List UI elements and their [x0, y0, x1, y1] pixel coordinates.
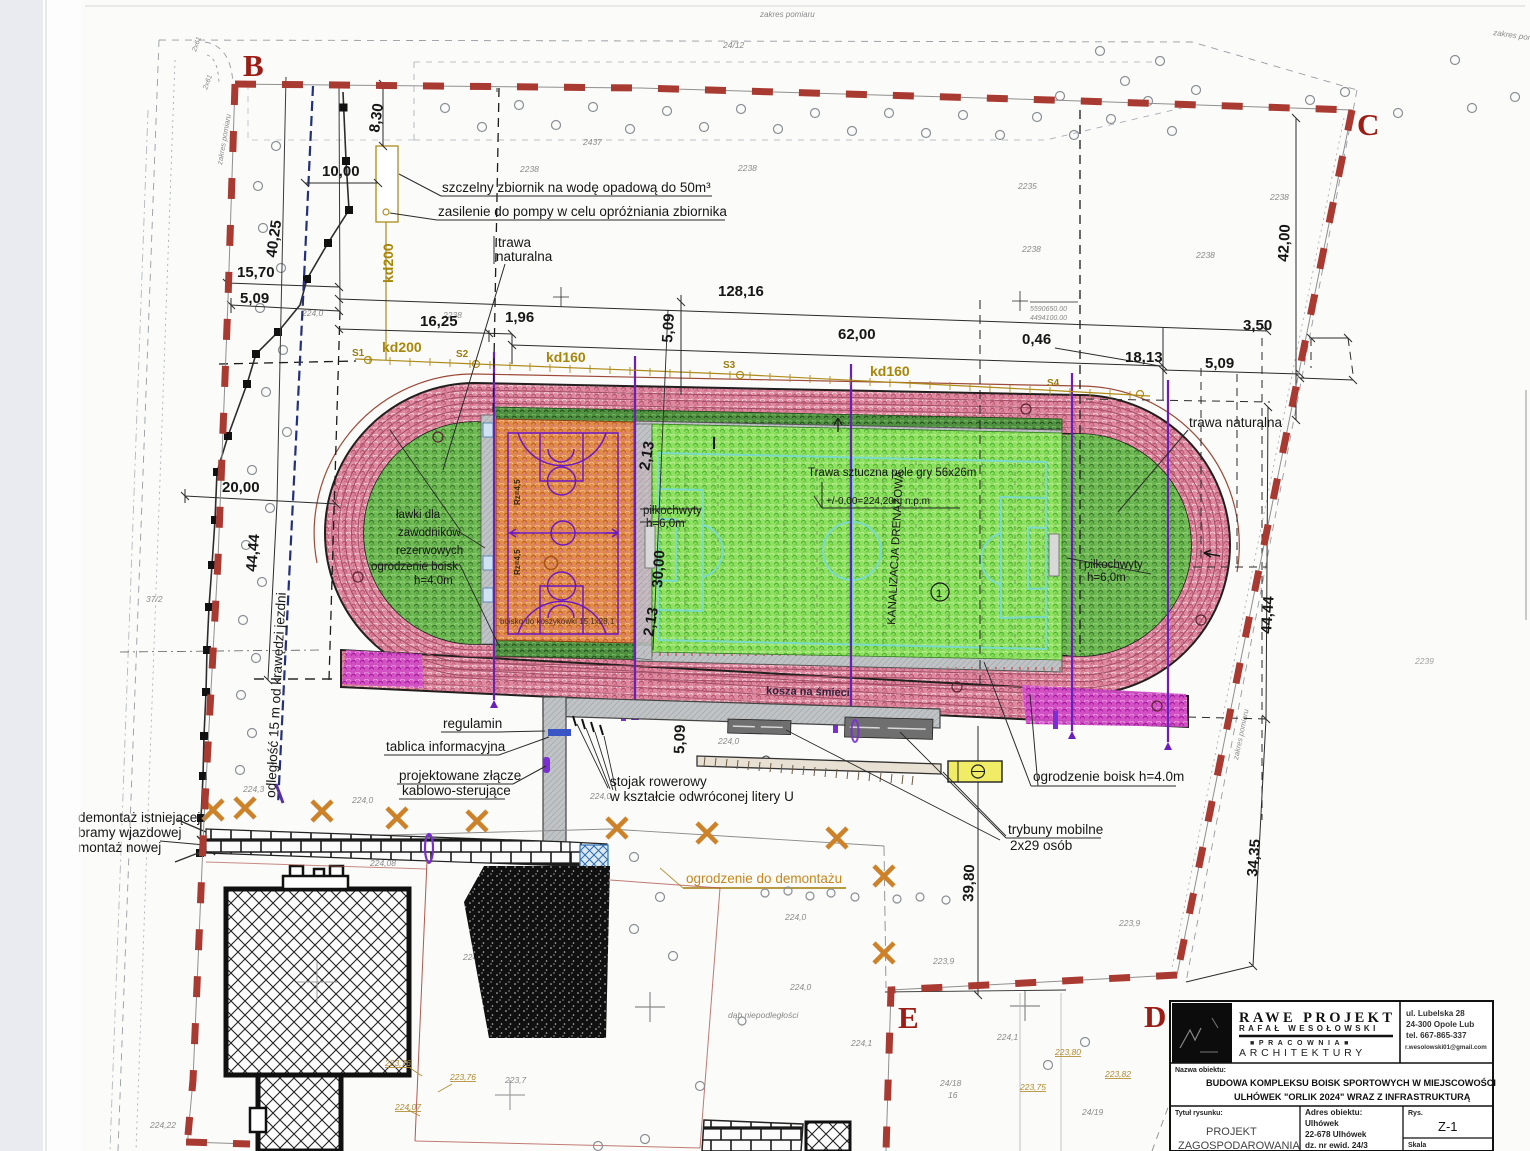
- svg-text:kablowo-sterujące: kablowo-sterujące: [402, 783, 511, 798]
- svg-text:42,00: 42,00: [1275, 224, 1294, 262]
- svg-text:5,09: 5,09: [1205, 355, 1234, 372]
- svg-text:Adres obiektu:: Adres obiektu:: [1305, 1108, 1362, 1117]
- svg-text:223,80: 223,80: [1054, 1047, 1081, 1057]
- svg-text:+/-0,00=224,20m n.p.m: +/-0,00=224,20m n.p.m: [826, 496, 930, 507]
- svg-text:kd160: kd160: [870, 363, 910, 379]
- svg-text:ul. Lubelska 28: ul. Lubelska 28: [1406, 1009, 1465, 1018]
- svg-text:S1: S1: [352, 348, 365, 359]
- svg-text:piłkochwyty: piłkochwyty: [643, 505, 702, 517]
- svg-text:Nazwa obiektu:: Nazwa obiektu:: [1175, 1067, 1226, 1074]
- svg-text:2238: 2238: [1195, 250, 1215, 260]
- svg-text:2437: 2437: [582, 137, 602, 147]
- svg-text:PROJEKT: PROJEKT: [1206, 1126, 1257, 1138]
- svg-text:39,80: 39,80: [960, 864, 978, 902]
- svg-text:zasilenie do pompy w celu opró: zasilenie do pompy w celu opróżniania zb…: [438, 204, 727, 219]
- svg-text:h=6,0m: h=6,0m: [1087, 572, 1126, 584]
- svg-text:62,00: 62,00: [838, 326, 876, 343]
- svg-text:boisko do koszykówki 15,1x28,1: boisko do koszykówki 15,1x28,1: [500, 617, 615, 626]
- svg-text:tablica informacyjna: tablica informacyjna: [386, 739, 506, 754]
- svg-text:22-678 Ulhówek: 22-678 Ulhówek: [1305, 1130, 1367, 1139]
- svg-text:2235: 2235: [1017, 181, 1037, 191]
- svg-text:ogrodzenie boisk h=4.0m: ogrodzenie boisk h=4.0m: [1033, 769, 1184, 784]
- svg-text:rezerwowych: rezerwowych: [396, 545, 463, 557]
- svg-text:224,07: 224,07: [394, 1102, 421, 1112]
- svg-text:ławki dla: ławki dla: [396, 509, 441, 521]
- svg-text:223,76: 223,76: [384, 1058, 411, 1068]
- svg-text:w kształcie odwróconej litery: w kształcie odwróconej litery U: [609, 789, 794, 804]
- svg-text:223,82: 223,82: [1104, 1069, 1131, 1079]
- svg-text:24/18: 24/18: [939, 1078, 962, 1088]
- svg-text:223,76: 223,76: [449, 1072, 476, 1082]
- svg-text:Rys.: Rys.: [1408, 1110, 1423, 1117]
- svg-text:kosza na śmieci: kosza na śmieci: [766, 685, 850, 699]
- svg-text:trawa naturalna: trawa naturalna: [1189, 415, 1283, 430]
- svg-text:r.wesolowski01@gmail.com: r.wesolowski01@gmail.com: [1405, 1044, 1487, 1051]
- svg-text:224,0: 224,0: [589, 791, 612, 801]
- svg-text:kd200: kd200: [380, 243, 396, 283]
- svg-text:0,46: 0,46: [1022, 331, 1051, 348]
- svg-text:kd160: kd160: [546, 349, 586, 365]
- svg-text:16,25: 16,25: [420, 313, 458, 330]
- svg-text:2238: 2238: [519, 164, 539, 174]
- svg-text:Rz=4,5: Rz=4,5: [513, 479, 522, 505]
- svg-text:223,9: 223,9: [1118, 918, 1141, 928]
- svg-text:3,50: 3,50: [1243, 317, 1272, 334]
- svg-text:4494100.00: 4494100.00: [1030, 315, 1067, 322]
- svg-text:224,3: 224,3: [242, 784, 265, 794]
- svg-text:Z-1: Z-1: [1438, 1119, 1458, 1134]
- svg-text:1: 1: [936, 588, 942, 600]
- svg-text:2238: 2238: [1021, 244, 1041, 254]
- svg-text:ogrodzenie do demontażu: ogrodzenie do demontażu: [686, 871, 842, 886]
- svg-text:223,9: 223,9: [932, 956, 955, 966]
- svg-text:S4: S4: [1047, 378, 1060, 389]
- svg-text:16: 16: [948, 1090, 958, 1100]
- svg-text:h=6,0m: h=6,0m: [646, 518, 685, 530]
- svg-text:kd200: kd200: [382, 339, 422, 355]
- svg-text:E: E: [898, 1000, 919, 1035]
- svg-text:BUDOWA KOMPLEKSU BOISK SPORTOW: BUDOWA KOMPLEKSU BOISK SPORTOWYCH W MIEJ…: [1206, 1077, 1496, 1088]
- svg-text:tel. 667-865-337: tel. 667-865-337: [1406, 1031, 1467, 1040]
- svg-text:224,0: 224,0: [784, 912, 807, 922]
- svg-text:44,44: 44,44: [243, 533, 263, 573]
- svg-text:ULHÓWEK "ORLIK 2024" WRAZ Z IN: ULHÓWEK "ORLIK 2024" WRAZ Z INFRASTRUKTU…: [1234, 1091, 1471, 1102]
- svg-text:5,09: 5,09: [659, 313, 678, 343]
- svg-text:1,96: 1,96: [505, 309, 534, 326]
- svg-text:224,22: 224,22: [149, 1120, 176, 1130]
- svg-text:24/12: 24/12: [722, 40, 745, 50]
- svg-text:■PRACOWNIA■: ■PRACOWNIA■: [1250, 1040, 1353, 1047]
- svg-text:projektowane złącze: projektowane złącze: [399, 768, 521, 783]
- svg-text:ARCHITEKTURY: ARCHITEKTURY: [1239, 1047, 1366, 1059]
- svg-text:30,00: 30,00: [649, 550, 669, 589]
- svg-text:Trawa sztuczna pole gry 56x26m: Trawa sztuczna pole gry 56x26m: [808, 467, 976, 479]
- svg-text:szczelny zbiornik na wodę opad: szczelny zbiornik na wodę opadową do 50m…: [442, 180, 711, 195]
- svg-text:piłkochwyty: piłkochwyty: [1084, 559, 1143, 571]
- svg-text:Tytuł rysunku:: Tytuł rysunku:: [1175, 1110, 1223, 1117]
- svg-text:C: C: [1357, 107, 1379, 142]
- svg-text:montaż nowej: montaż nowej: [78, 840, 161, 855]
- svg-text:34,35: 34,35: [1244, 838, 1264, 877]
- svg-text:regulamin: regulamin: [443, 716, 502, 731]
- svg-text:15,70: 15,70: [237, 264, 275, 281]
- svg-text:naturalna: naturalna: [496, 249, 553, 264]
- svg-text:D: D: [1144, 999, 1166, 1034]
- svg-text:h=4.0m: h=4.0m: [414, 575, 453, 587]
- svg-text:224,0: 224,0: [789, 982, 812, 992]
- svg-text:S2: S2: [456, 349, 469, 360]
- svg-text:44,44: 44,44: [1258, 595, 1278, 634]
- svg-text:dz. nr ewid. 24/3: dz. nr ewid. 24/3: [1305, 1141, 1368, 1150]
- svg-text:224,0: 224,0: [717, 736, 740, 746]
- svg-text:2238: 2238: [1269, 192, 1289, 202]
- svg-text:demontaż istniejącej: demontaż istniejącej: [78, 810, 200, 825]
- svg-text:223,7: 223,7: [504, 1075, 527, 1085]
- svg-text:20,00: 20,00: [222, 479, 260, 496]
- svg-text:Rz=4,5: Rz=4,5: [513, 549, 522, 575]
- svg-text:S3: S3: [723, 360, 736, 371]
- svg-text:Ulhówek: Ulhówek: [1305, 1119, 1339, 1128]
- svg-text:5590650.00: 5590650.00: [1030, 306, 1067, 313]
- svg-text:bramy wjazdowej: bramy wjazdowej: [78, 825, 182, 840]
- svg-text:2238: 2238: [737, 163, 757, 173]
- svg-text:trawa: trawa: [498, 235, 532, 250]
- svg-text:18,13: 18,13: [1125, 349, 1163, 366]
- svg-text:224,0: 224,0: [351, 795, 374, 805]
- svg-text:trybuny mobilne: trybuny mobilne: [1008, 822, 1103, 837]
- svg-text:stojak rowerowy: stojak rowerowy: [610, 774, 707, 789]
- svg-text:10,00: 10,00: [322, 163, 360, 180]
- svg-text:ogrodzenie boisk: ogrodzenie boisk: [371, 561, 458, 573]
- svg-text:128,16: 128,16: [718, 283, 764, 300]
- svg-text:223,75: 223,75: [1019, 1082, 1046, 1092]
- svg-text:zakres pomiaru: zakres pomiaru: [759, 10, 815, 19]
- svg-text:zawodników: zawodników: [398, 527, 461, 539]
- svg-text:Skala: Skala: [1408, 1142, 1426, 1149]
- svg-text:ZAGOSPODAROWANIA: ZAGOSPODAROWANIA: [1178, 1140, 1300, 1151]
- svg-text:B: B: [243, 48, 264, 83]
- svg-text:24-300 Opole Lub: 24-300 Opole Lub: [1406, 1020, 1474, 1029]
- svg-text:37/2: 37/2: [146, 594, 163, 604]
- svg-text:2239: 2239: [1414, 656, 1434, 666]
- svg-text:24/19: 24/19: [1081, 1107, 1104, 1117]
- svg-text:2x29 osób: 2x29 osób: [1010, 838, 1072, 853]
- svg-text:5,09: 5,09: [240, 290, 269, 307]
- svg-text:224,1: 224,1: [996, 1032, 1019, 1042]
- svg-text:5,09: 5,09: [671, 724, 689, 754]
- svg-text:224,1: 224,1: [850, 1038, 873, 1048]
- svg-text:RAFAŁ WESOŁOWSKI: RAFAŁ WESOŁOWSKI: [1239, 1024, 1379, 1033]
